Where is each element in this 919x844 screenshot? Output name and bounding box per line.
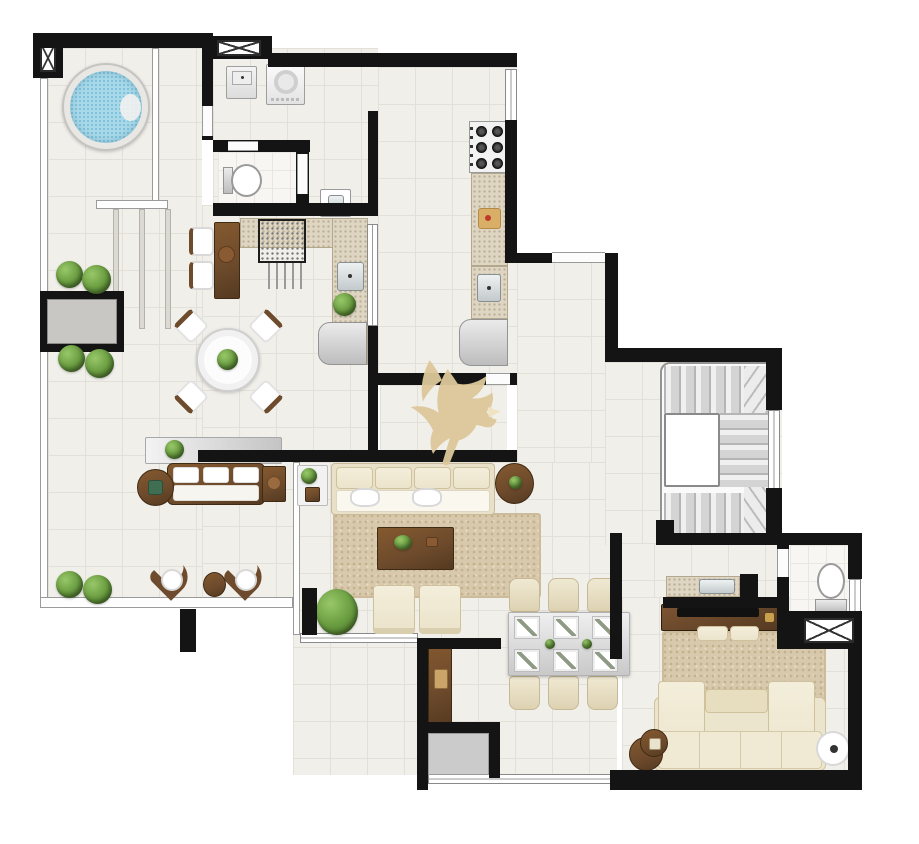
plant-bush bbox=[83, 575, 112, 604]
food-item bbox=[485, 215, 491, 221]
wall-stub-terrace bbox=[180, 609, 196, 652]
laundry-tub bbox=[226, 66, 257, 99]
living-plant bbox=[316, 589, 358, 635]
planter-box bbox=[47, 299, 117, 344]
sofa-backrest bbox=[705, 689, 768, 713]
back-cushion bbox=[336, 467, 373, 489]
floor-lamp bbox=[816, 731, 850, 766]
floor-entry-hall bbox=[517, 262, 607, 462]
burner bbox=[492, 126, 503, 137]
pillow bbox=[350, 488, 380, 507]
ottoman bbox=[730, 626, 759, 641]
entry-door bbox=[552, 252, 605, 263]
shaft-x-icon bbox=[40, 44, 56, 72]
ottoman bbox=[697, 626, 728, 641]
burner bbox=[476, 126, 487, 137]
laundry-tub-drain bbox=[241, 76, 244, 79]
table-plant bbox=[509, 476, 522, 489]
cooktop-knobs bbox=[470, 127, 473, 169]
wall-top-main bbox=[268, 53, 517, 67]
buffet-decor bbox=[434, 669, 448, 689]
burner bbox=[476, 158, 487, 169]
console-decor bbox=[765, 613, 774, 622]
bbq-grill bbox=[258, 219, 306, 263]
burner bbox=[492, 142, 503, 153]
round-side-table bbox=[640, 729, 668, 757]
placemat bbox=[553, 649, 579, 672]
ac-equipment-box bbox=[428, 733, 489, 775]
wall-wc-south bbox=[213, 203, 378, 216]
wall-top-terrace bbox=[33, 33, 213, 48]
kitchen-sink bbox=[477, 274, 501, 302]
minibar-fridge bbox=[318, 322, 367, 365]
table-greenery bbox=[582, 639, 592, 649]
washing-machine bbox=[266, 64, 305, 105]
cutting-board bbox=[478, 208, 501, 229]
staircase bbox=[660, 362, 780, 543]
outdoor-sofa bbox=[167, 463, 265, 505]
side-table-plant bbox=[301, 468, 317, 484]
sink-drain bbox=[348, 274, 352, 278]
sofa-seat-cushions bbox=[658, 731, 822, 769]
dining-chair bbox=[587, 676, 618, 710]
armchair bbox=[373, 585, 415, 634]
kitchen-window bbox=[505, 69, 517, 123]
buffet bbox=[428, 640, 452, 727]
counter-plant bbox=[333, 293, 356, 316]
wall-stair-east bbox=[766, 488, 782, 533]
jacuzzi-partition-wall bbox=[152, 48, 159, 209]
toilet bbox=[231, 164, 262, 197]
table-decor bbox=[267, 476, 281, 490]
burner bbox=[492, 158, 503, 169]
pergola-beam bbox=[96, 200, 168, 209]
eagle-watermark-icon bbox=[396, 358, 508, 474]
wall-hall-north bbox=[505, 253, 552, 263]
pass-through-window bbox=[367, 224, 378, 326]
wall-kitchen-east bbox=[505, 120, 517, 262]
terrace-bottom-railing bbox=[40, 597, 293, 608]
wall-stair-east bbox=[766, 362, 782, 410]
lounge-cushion bbox=[235, 569, 257, 591]
armchair bbox=[419, 585, 461, 634]
plant-bush bbox=[58, 345, 85, 372]
stair-treads-top bbox=[664, 366, 744, 413]
floor-plan-canvas bbox=[0, 0, 919, 844]
placemat bbox=[553, 616, 579, 639]
plant-bush bbox=[85, 349, 114, 378]
pouf bbox=[203, 572, 226, 597]
shaft-x-icon bbox=[804, 618, 854, 643]
plant-bush bbox=[56, 261, 83, 288]
stair-void bbox=[664, 413, 720, 487]
dining-chair bbox=[509, 676, 540, 710]
plant-bush bbox=[56, 571, 83, 598]
duct-x-icon bbox=[217, 40, 261, 56]
wall-kitchen-west bbox=[368, 111, 378, 212]
sofa-cushion bbox=[233, 467, 259, 483]
wall-tv-south bbox=[610, 770, 862, 790]
bathroom-toilet bbox=[817, 563, 845, 599]
wall-hall-east bbox=[605, 253, 618, 358]
sink-drain bbox=[487, 286, 491, 290]
stair-window bbox=[768, 410, 780, 490]
wall-bathroom-east bbox=[848, 533, 862, 579]
lamp-center bbox=[830, 745, 838, 753]
jacuzzi-seat bbox=[120, 94, 141, 121]
bathroom-door bbox=[777, 549, 789, 577]
wall-corridor-north bbox=[656, 533, 772, 545]
sofa-seat bbox=[173, 485, 259, 501]
lounge-cushion bbox=[161, 569, 183, 591]
book-stack bbox=[305, 487, 320, 502]
wc-door bbox=[297, 154, 308, 194]
gourmet-sink bbox=[337, 262, 364, 291]
coffee-table-plant bbox=[394, 535, 412, 550]
table-centerpiece-plant bbox=[217, 349, 238, 370]
wall-stair-north bbox=[605, 348, 782, 362]
wall-counter-stub bbox=[740, 574, 758, 598]
plant-bush bbox=[82, 265, 111, 294]
wall-kitchen-west bbox=[368, 326, 378, 462]
outdoor-round-table bbox=[137, 469, 174, 506]
tv bbox=[677, 608, 759, 617]
wall-tv-east bbox=[848, 649, 862, 790]
dining-west-window bbox=[300, 633, 418, 643]
sofa-cushion bbox=[203, 467, 229, 483]
wall-dining-west bbox=[417, 638, 428, 790]
washer-controls bbox=[271, 98, 301, 101]
pergola-slat bbox=[139, 209, 145, 329]
wc-window bbox=[228, 141, 258, 151]
burner bbox=[476, 142, 487, 153]
wall-ac-frame bbox=[489, 722, 500, 778]
bar-tray bbox=[218, 246, 235, 263]
dining-south-window bbox=[428, 774, 612, 784]
placemat bbox=[514, 649, 540, 672]
bar-stool bbox=[189, 261, 214, 290]
wall-tv-north bbox=[663, 597, 780, 608]
table-tray bbox=[426, 537, 438, 547]
coffee-table bbox=[377, 527, 454, 570]
placemat bbox=[514, 616, 540, 639]
table-tray bbox=[649, 738, 661, 750]
wall-tv-west bbox=[610, 533, 622, 659]
counter-sink bbox=[699, 579, 735, 594]
pergola-slat bbox=[165, 209, 171, 329]
sofa-cushion bbox=[173, 467, 199, 483]
sideboard-plant bbox=[165, 440, 184, 459]
laundry-door bbox=[202, 106, 213, 136]
pillow bbox=[412, 488, 442, 507]
outdoor-side-table bbox=[262, 466, 286, 502]
dining-chair bbox=[548, 676, 579, 710]
washer-drum bbox=[274, 70, 298, 94]
dining-chair bbox=[548, 578, 579, 612]
table-tray bbox=[148, 480, 163, 495]
wall-stub-living bbox=[302, 588, 317, 635]
wall-dining-north-stub bbox=[417, 638, 501, 649]
bar-stool bbox=[189, 227, 214, 256]
dining-chair bbox=[509, 578, 540, 612]
grill-skewers bbox=[262, 263, 302, 289]
table-greenery bbox=[545, 639, 555, 649]
